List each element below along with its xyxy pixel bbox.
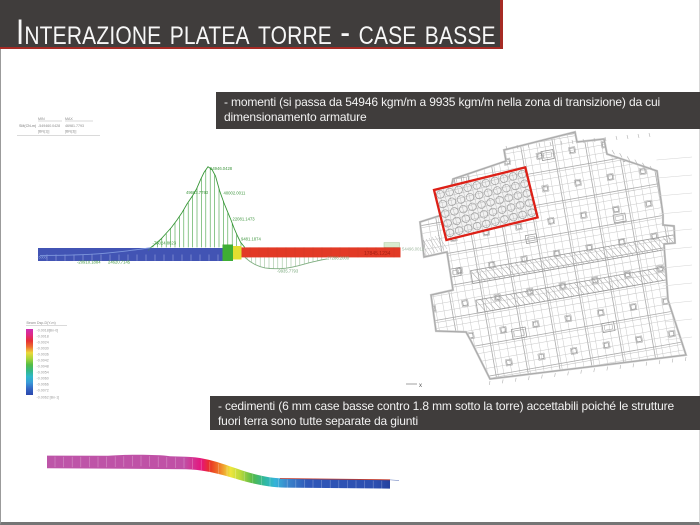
svg-text:[BN(3)]: [BN(3)] — [65, 130, 76, 134]
svg-text:46981.7793: 46981.7793 — [65, 124, 84, 128]
svg-text:SM(CN-m): SM(CN-m) — [19, 124, 36, 128]
svg-text:-75024.8623: -75024.8623 — [153, 241, 177, 246]
svg-text:-20910.1884: -20910.1884 — [77, 260, 101, 265]
svg-text:27286.2000: 27286.2000 — [327, 256, 350, 261]
svg-text:-9935.7793: -9935.7793 — [277, 269, 299, 274]
svg-text:-0.0066: -0.0066 — [37, 383, 49, 387]
svg-text:-0.0048: -0.0048 — [37, 365, 49, 369]
svg-text:-5000: -5000 — [38, 256, 47, 260]
svg-text:-0.0054: -0.0054 — [37, 371, 49, 375]
svg-text:54496.0012: 54496.0012 — [402, 247, 425, 252]
svg-text:-0.0072: -0.0072 — [37, 389, 49, 393]
svg-text:54946.0428: 54946.0428 — [210, 166, 233, 171]
svg-text:-0.0042: -0.0042 — [37, 359, 49, 363]
svg-text:-0.0036: -0.0036 — [37, 353, 49, 357]
svg-text:MAX: MAX — [65, 117, 73, 121]
svg-text:[BN(1)]: [BN(1)] — [38, 130, 49, 134]
svg-text:22081.1473: 22081.1473 — [233, 217, 256, 222]
svg-text:17845.1234: 17845.1234 — [364, 251, 391, 257]
svg-text:-0.0018: -0.0018 — [37, 335, 49, 339]
svg-text:-0.0018[Bn-0]: -0.0018[Bn-0] — [37, 329, 59, 333]
svg-text:24620.7145: 24620.7145 — [108, 260, 131, 265]
svg-text:40002.0011: 40002.0011 — [224, 191, 246, 196]
svg-text:-549460.0428: -549460.0428 — [38, 124, 60, 128]
svg-text:9481.1874: 9481.1874 — [241, 237, 261, 242]
svg-text:-0.0062 [Bn-1]: -0.0062 [Bn-1] — [37, 396, 60, 400]
svg-text:-0.0024: -0.0024 — [37, 341, 49, 345]
svg-text:MIN: MIN — [38, 117, 45, 121]
svg-text:49663.7793: 49663.7793 — [186, 190, 209, 195]
svg-text:-0.0030: -0.0030 — [37, 347, 49, 351]
svg-text:-0.0060: -0.0060 — [37, 377, 49, 381]
svg-text:Beam Dsp-D(Y-m): Beam Dsp-D(Y-m) — [27, 321, 56, 325]
svg-text:x: x — [419, 383, 422, 389]
